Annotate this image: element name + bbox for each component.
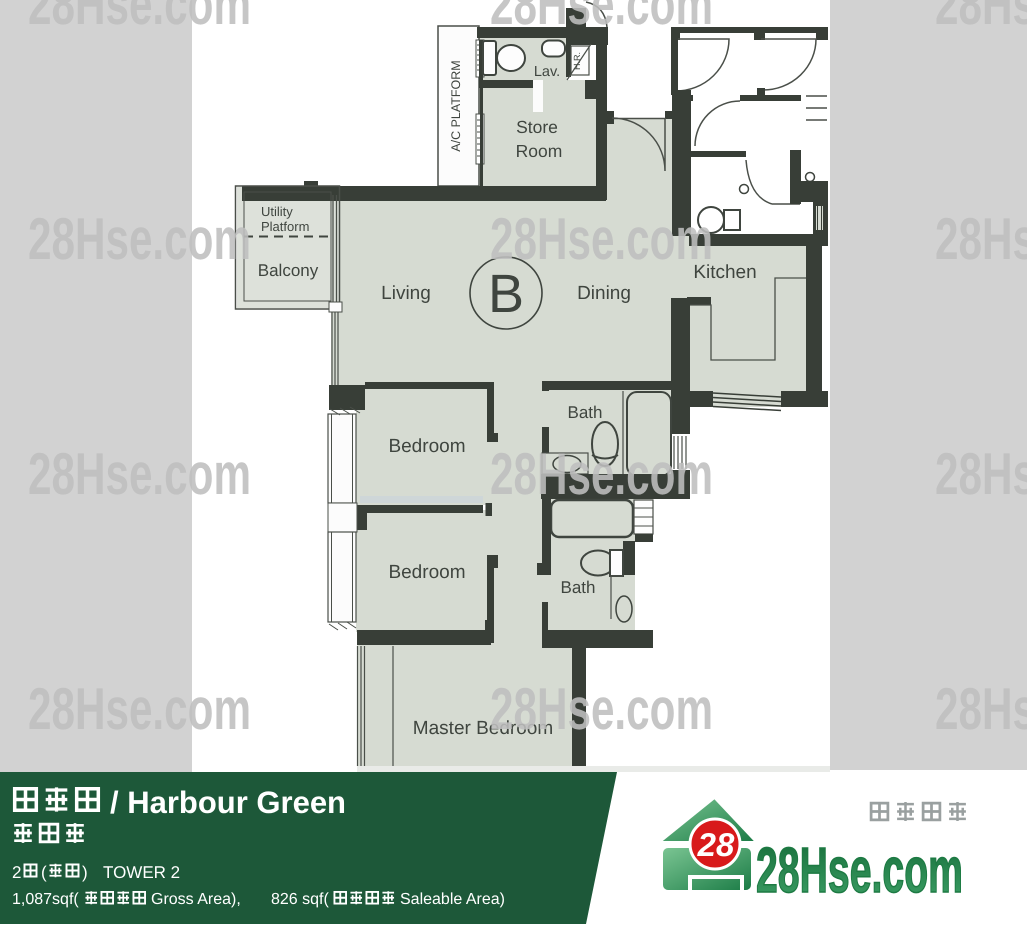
svg-text:28Hse.com: 28Hse.com [756, 834, 963, 906]
svg-text:Living: Living [381, 283, 431, 304]
svg-text:(: ( [41, 863, 47, 882]
svg-text:Dining: Dining [577, 283, 631, 304]
svg-text:1,087sqf(: 1,087sqf( [12, 891, 79, 908]
svg-text:TOWER 2: TOWER 2 [103, 863, 180, 882]
svg-text:2: 2 [12, 863, 21, 882]
svg-text:Store: Store [516, 117, 558, 137]
svg-text:28Hse.com: 28Hse.com [490, 676, 713, 742]
svg-text:28Hse.com: 28Hse.com [490, 206, 713, 272]
svg-text:Bath: Bath [568, 403, 603, 422]
svg-text:Room: Room [516, 141, 563, 161]
svg-text:28Hse.com: 28Hse.com [28, 676, 251, 742]
svg-text:Gross Area),: Gross Area), [151, 891, 241, 908]
svg-text:B: B [488, 264, 524, 324]
svg-text:Lav.: Lav. [534, 64, 560, 80]
svg-text:Balcony: Balcony [258, 261, 319, 280]
svg-text:Utility: Utility [261, 204, 293, 219]
svg-text:28Hse.com: 28Hse.com [935, 206, 1027, 272]
svg-text:A/C PLATFORM: A/C PLATFORM [449, 60, 463, 151]
svg-text:826 sqf(: 826 sqf( [271, 891, 329, 908]
svg-text:/ Harbour Green: / Harbour Green [110, 785, 346, 820]
svg-text:Bath: Bath [561, 578, 596, 597]
svg-text:Platform: Platform [261, 219, 309, 234]
svg-text:28Hse.com: 28Hse.com [935, 676, 1027, 742]
svg-text:28Hse.com: 28Hse.com [28, 0, 251, 37]
svg-text:): ) [82, 863, 88, 882]
svg-text:Bedroom: Bedroom [388, 562, 465, 583]
svg-text:28Hse.com: 28Hse.com [935, 441, 1027, 507]
svg-text:28Hse.com: 28Hse.com [490, 0, 713, 37]
svg-text:Saleable Area): Saleable Area) [400, 891, 505, 908]
svg-text:Bedroom: Bedroom [388, 436, 465, 457]
svg-text:28Hse.com: 28Hse.com [490, 441, 713, 507]
svg-text:H.R.: H.R. [572, 52, 582, 70]
svg-text:28Hse.com: 28Hse.com [28, 441, 251, 507]
svg-text:28Hse.com: 28Hse.com [935, 0, 1027, 37]
svg-text:28: 28 [697, 826, 735, 863]
svg-text:28Hse.com: 28Hse.com [28, 206, 251, 272]
